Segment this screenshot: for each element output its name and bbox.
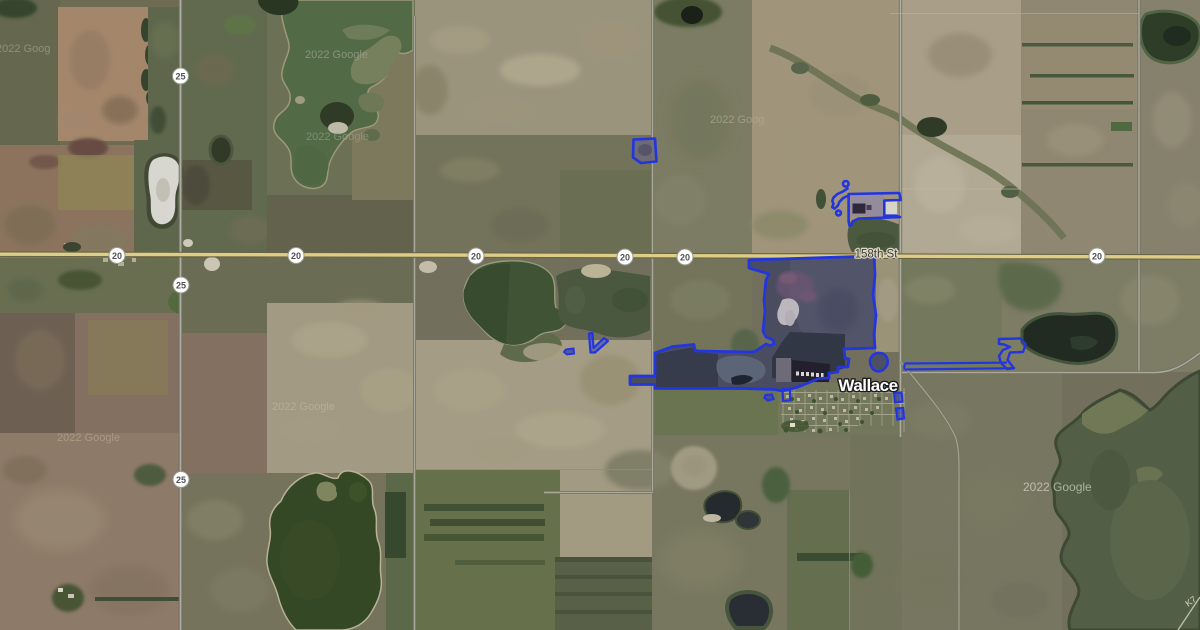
svg-text:20: 20 xyxy=(1092,252,1102,262)
svg-text:158th St: 158th St xyxy=(855,249,899,261)
svg-text:20: 20 xyxy=(471,252,481,262)
svg-text:2022 Goog: 2022 Goog xyxy=(0,43,50,55)
svg-text:2022 Google: 2022 Google xyxy=(305,49,368,61)
svg-text:2022 Google: 2022 Google xyxy=(57,432,120,444)
svg-text:2022 Goog: 2022 Goog xyxy=(710,114,764,126)
svg-text:Wallace: Wallace xyxy=(838,376,897,395)
svg-text:25: 25 xyxy=(176,475,186,485)
svg-text:2022 Google: 2022 Google xyxy=(1023,480,1092,494)
svg-text:20: 20 xyxy=(620,253,630,263)
svg-text:2022 Google: 2022 Google xyxy=(272,401,335,413)
svg-text:20: 20 xyxy=(291,251,301,261)
svg-text:2022 Google: 2022 Google xyxy=(306,131,369,143)
svg-text:25: 25 xyxy=(176,281,186,291)
svg-text:25: 25 xyxy=(175,72,185,82)
svg-text:20: 20 xyxy=(112,251,122,261)
svg-text:20: 20 xyxy=(680,253,690,263)
